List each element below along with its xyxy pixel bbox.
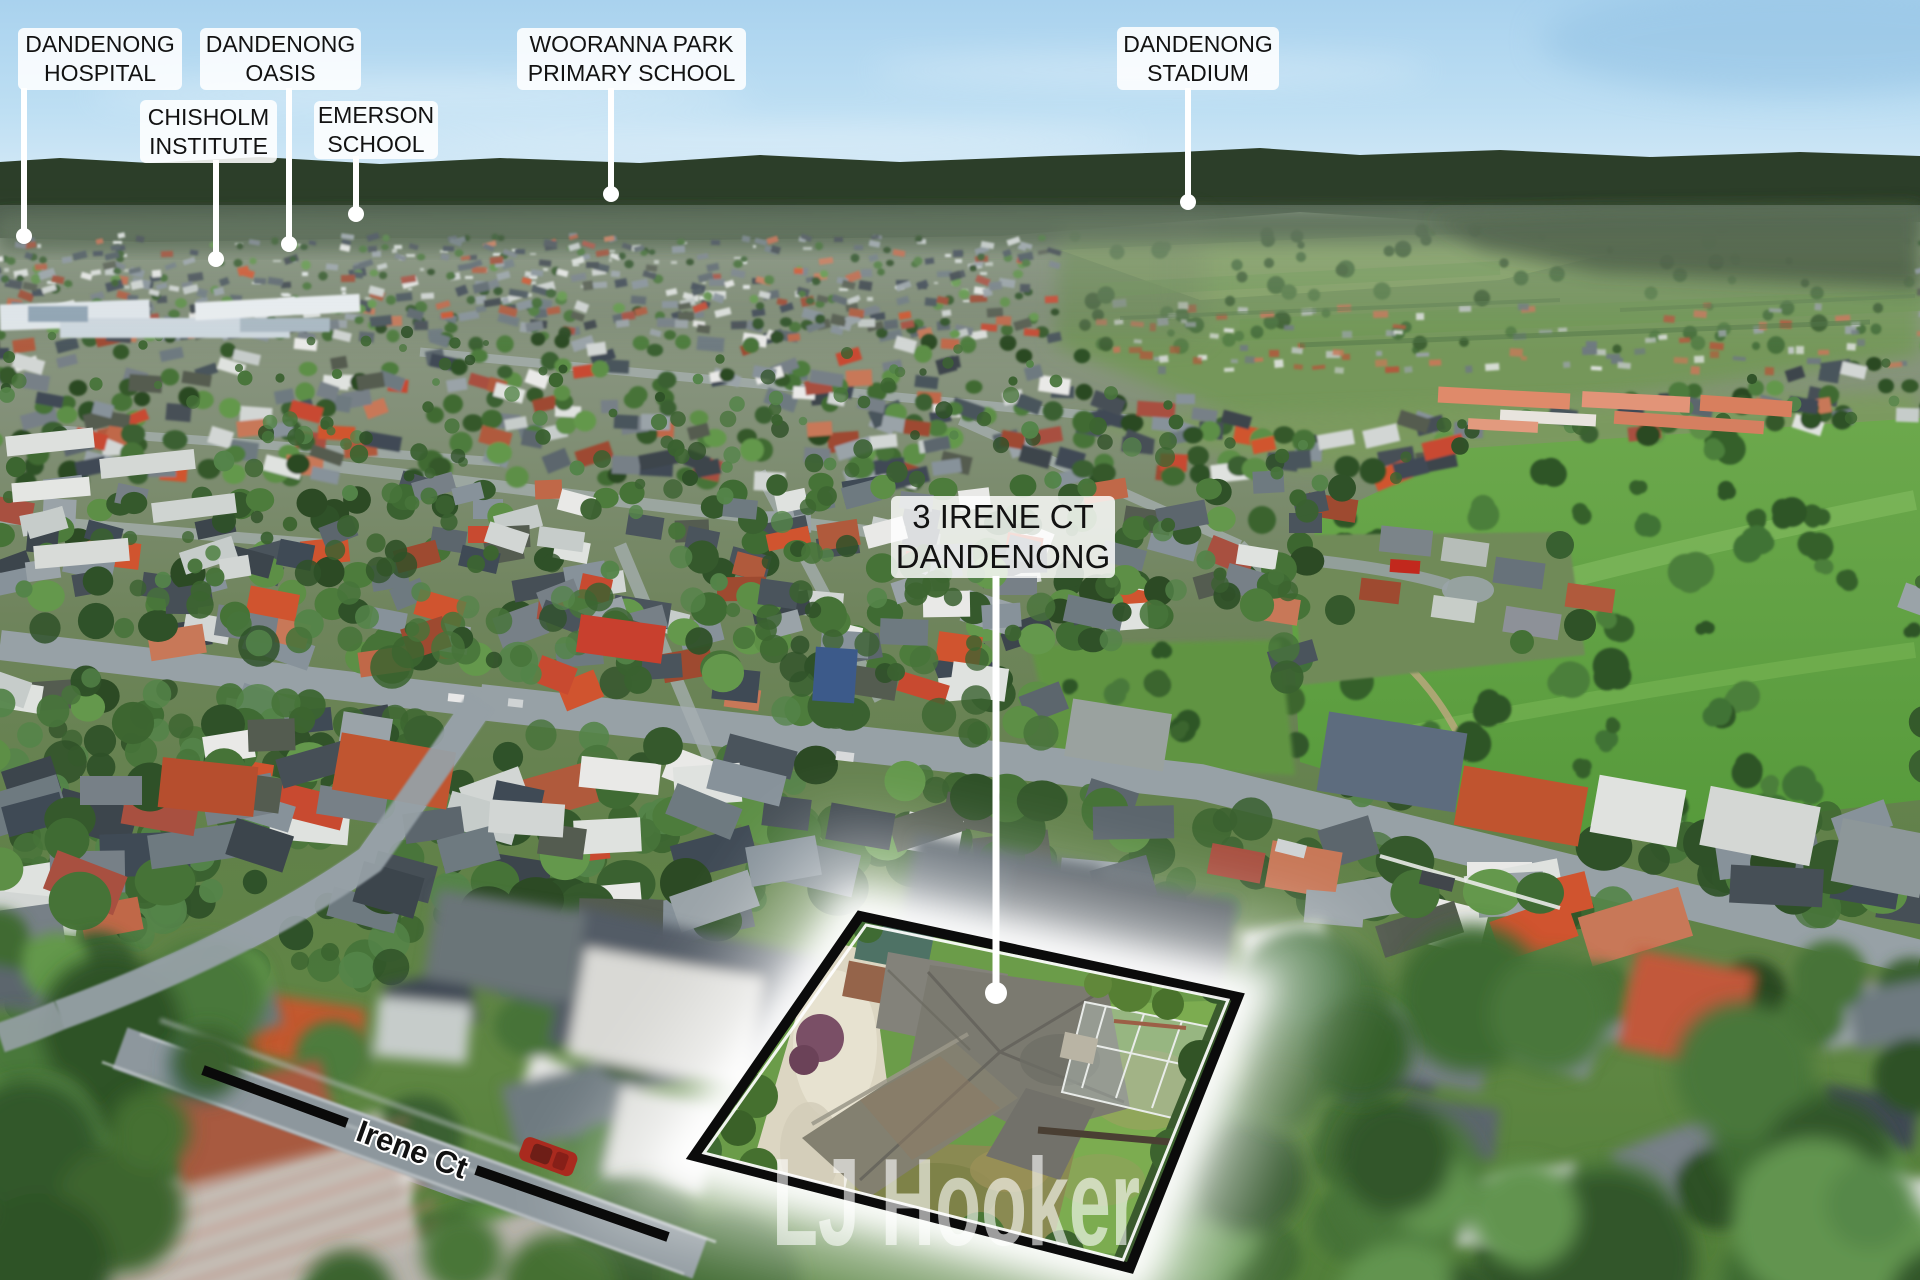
svg-text:LJ Hooker: LJ Hooker <box>772 1134 1140 1272</box>
